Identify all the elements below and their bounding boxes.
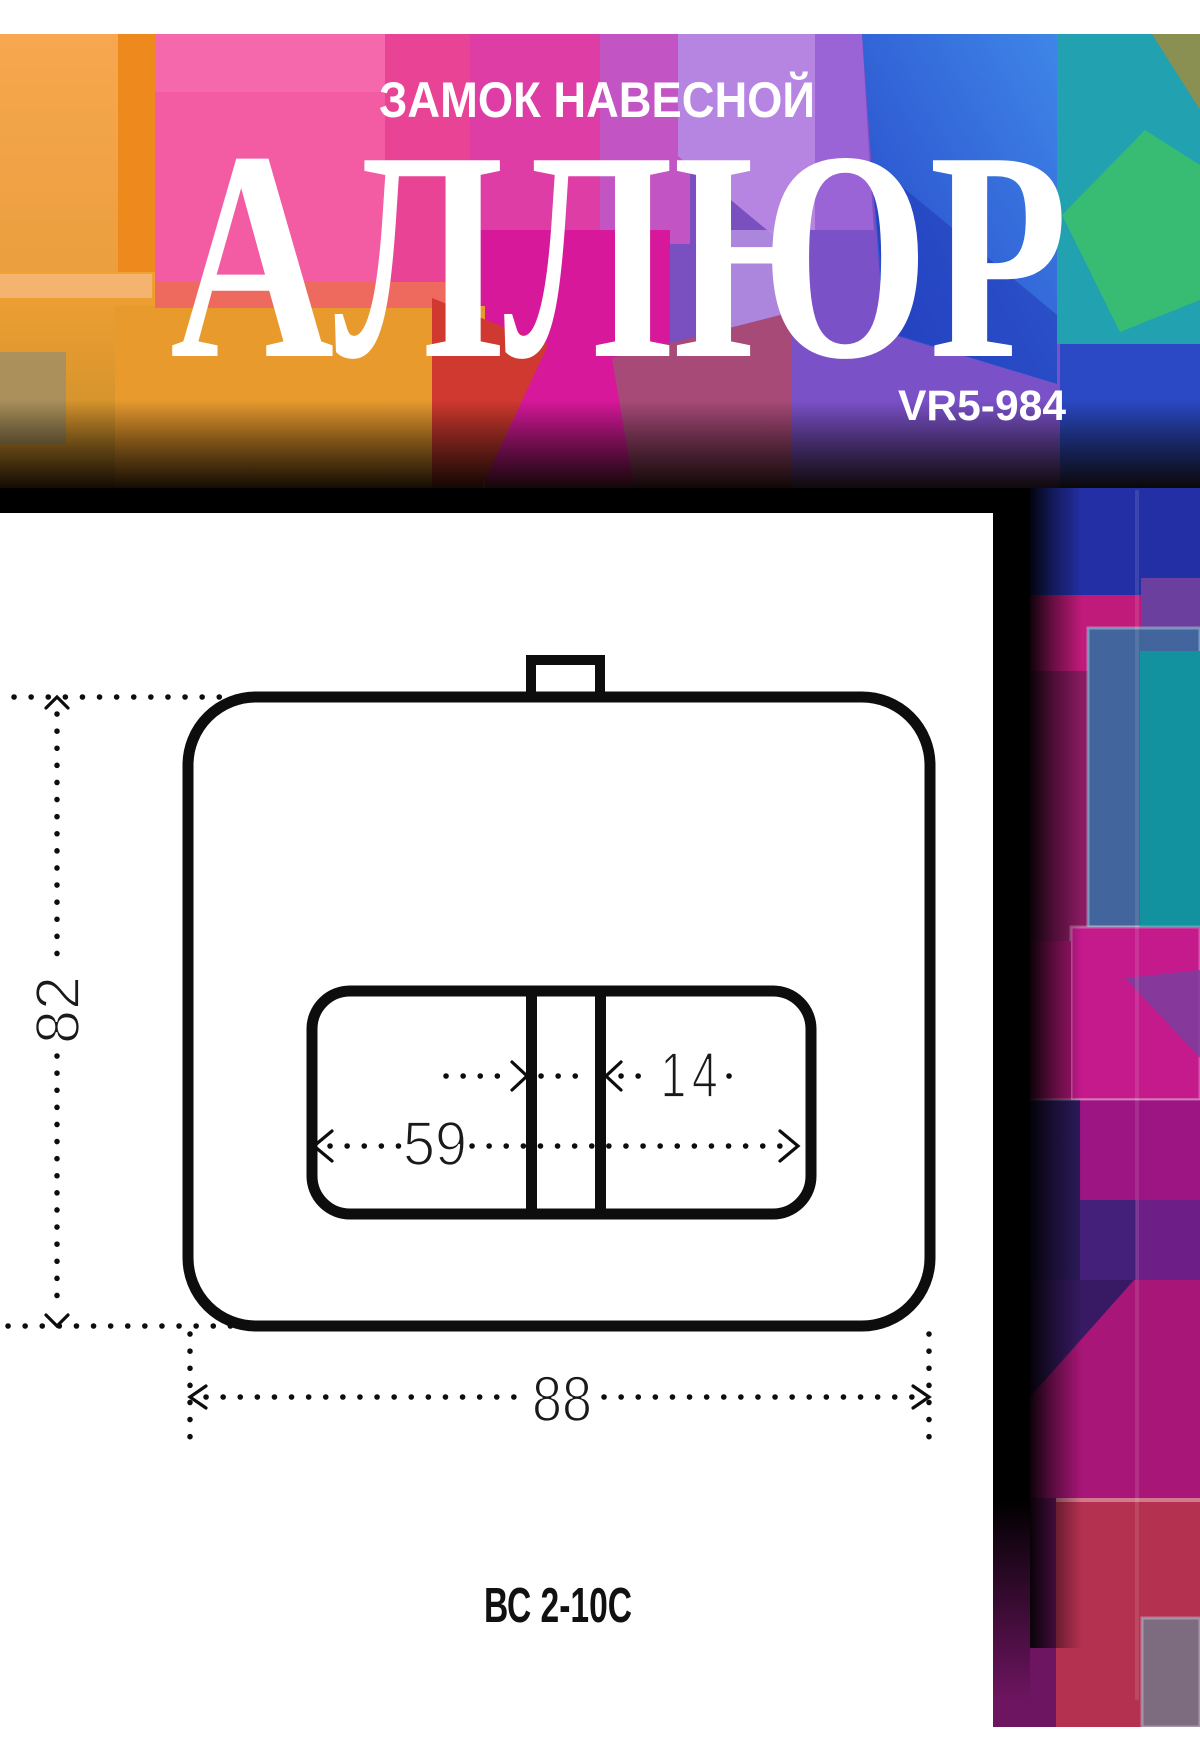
svg-text:82: 82 [24,976,93,1044]
svg-text:88: 88 [532,1363,592,1435]
svg-text:59: 59 [403,1110,467,1179]
svg-text:14: 14 [661,1039,724,1111]
